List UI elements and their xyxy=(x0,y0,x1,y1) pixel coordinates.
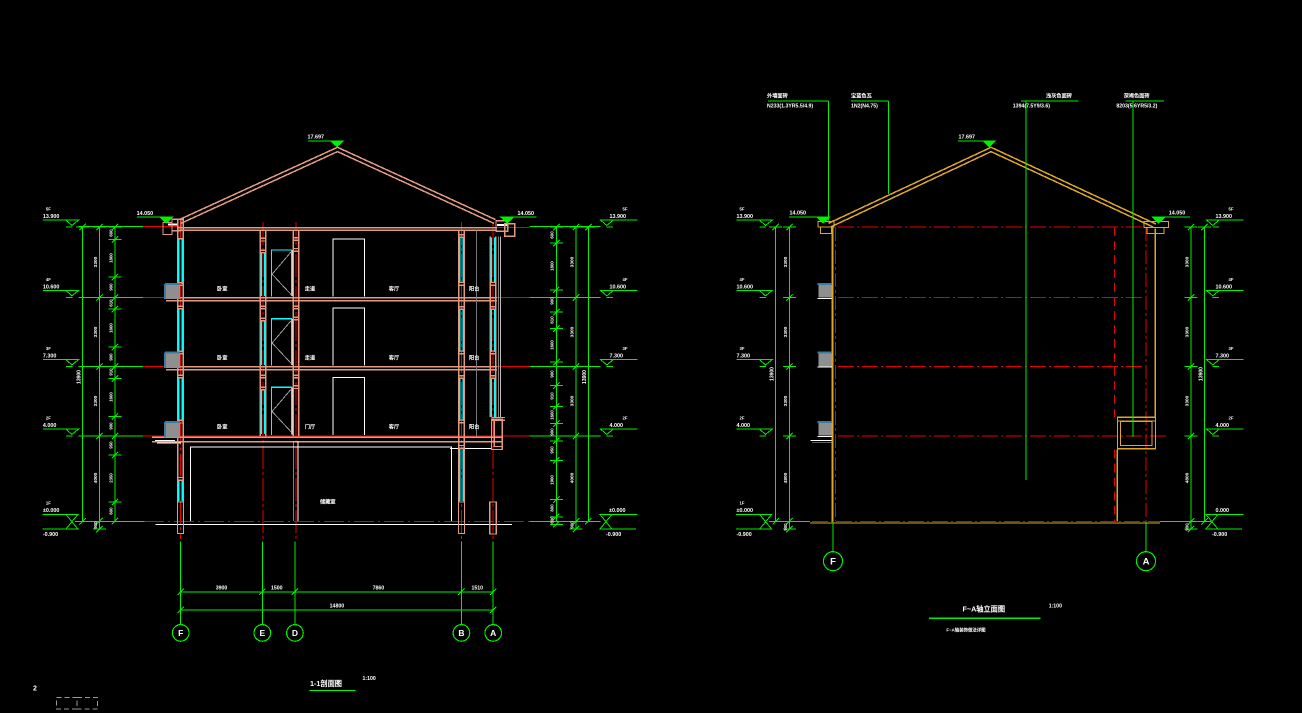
svg-text:14800: 14800 xyxy=(330,603,345,609)
svg-text:1600: 1600 xyxy=(550,410,555,420)
svg-text:7.300: 7.300 xyxy=(610,353,624,359)
svg-text:2F: 2F xyxy=(623,416,628,421)
svg-text:7.300: 7.300 xyxy=(1216,353,1230,359)
svg-text:910: 910 xyxy=(108,368,113,376)
svg-text:±0.000: ±0.000 xyxy=(43,508,59,514)
svg-text:3F: 3F xyxy=(623,346,628,351)
svg-text:客厅: 客厅 xyxy=(388,354,400,362)
svg-text:4F: 4F xyxy=(623,277,628,282)
svg-text:-0.900: -0.900 xyxy=(606,532,621,538)
svg-text:600: 600 xyxy=(108,229,113,237)
svg-text:-0.900: -0.900 xyxy=(1212,532,1227,538)
svg-text:3300: 3300 xyxy=(1184,326,1190,337)
svg-text:1F: 1F xyxy=(740,501,745,506)
svg-text:10.600: 10.600 xyxy=(610,284,627,290)
svg-text:950: 950 xyxy=(550,446,555,454)
svg-text:2F: 2F xyxy=(1229,416,1234,421)
svg-text:1394(7.5Y9/3.6): 1394(7.5Y9/3.6) xyxy=(1013,104,1050,110)
svg-text:F~A轴立面图: F~A轴立面图 xyxy=(963,605,1006,614)
svg-text:600: 600 xyxy=(550,516,555,524)
svg-text:卧室: 卧室 xyxy=(217,354,227,362)
svg-text:1800: 1800 xyxy=(550,261,555,271)
svg-text:5F: 5F xyxy=(1229,207,1234,212)
svg-text:900: 900 xyxy=(1184,523,1189,531)
svg-text:17.697: 17.697 xyxy=(308,135,325,141)
svg-text:4800: 4800 xyxy=(783,472,789,483)
svg-text:13900: 13900 xyxy=(1198,367,1204,381)
svg-text:外墙面砖: 外墙面砖 xyxy=(767,92,789,100)
svg-text:4.000: 4.000 xyxy=(737,423,751,429)
svg-text:900: 900 xyxy=(783,523,788,531)
svg-text:1600: 1600 xyxy=(550,340,555,350)
svg-text:7.300: 7.300 xyxy=(43,353,57,359)
svg-text:5F: 5F xyxy=(46,207,51,212)
svg-text:深褐色面砖: 深褐色面砖 xyxy=(1124,92,1151,100)
svg-text:13900: 13900 xyxy=(770,367,776,381)
svg-text:3300: 3300 xyxy=(93,326,99,337)
svg-text:N233(1.3YR5.5/4.9): N233(1.3YR5.5/4.9) xyxy=(767,104,813,110)
svg-text:3300: 3300 xyxy=(569,395,575,406)
svg-text:900: 900 xyxy=(569,521,574,529)
svg-text:4000: 4000 xyxy=(569,472,575,483)
svg-text:14.050: 14.050 xyxy=(1169,211,1186,217)
svg-text:3300: 3300 xyxy=(93,256,99,267)
svg-text:客厅: 客厅 xyxy=(388,423,400,431)
svg-text:2F: 2F xyxy=(740,416,745,421)
svg-text:1F: 1F xyxy=(46,501,51,506)
svg-text:阳台: 阳台 xyxy=(469,423,479,431)
svg-text:600: 600 xyxy=(108,507,113,515)
svg-text:阳台: 阳台 xyxy=(469,285,479,293)
svg-text:A: A xyxy=(490,628,496,638)
svg-text:储藏室: 储藏室 xyxy=(320,498,336,506)
svg-text:F~A轴装饰做法详图: F~A轴装饰做法详图 xyxy=(946,626,986,633)
svg-text:F: F xyxy=(178,628,183,638)
svg-text:2350: 2350 xyxy=(108,473,113,483)
svg-text:13.900: 13.900 xyxy=(1216,214,1233,220)
svg-text:门厅: 门厅 xyxy=(305,423,316,431)
svg-text:610: 610 xyxy=(550,316,555,324)
svg-text:13.900: 13.900 xyxy=(610,214,627,220)
svg-text:B: B xyxy=(458,628,464,638)
svg-text:3900: 3900 xyxy=(216,585,228,591)
svg-text:14.050: 14.050 xyxy=(137,211,154,217)
svg-text:13.900: 13.900 xyxy=(43,214,60,220)
svg-text:2F: 2F xyxy=(46,416,51,421)
svg-text:4F: 4F xyxy=(1229,277,1234,282)
svg-text:±0.000: ±0.000 xyxy=(609,508,625,514)
svg-text:-0.900: -0.900 xyxy=(737,532,752,538)
svg-text:走道: 走道 xyxy=(305,285,316,293)
svg-text:600: 600 xyxy=(550,231,555,239)
svg-text:1800: 1800 xyxy=(108,253,113,263)
svg-text:客厅: 客厅 xyxy=(388,285,400,293)
svg-text:5F: 5F xyxy=(740,207,745,212)
svg-text:1900: 1900 xyxy=(550,475,555,485)
svg-text:1-1剖面图: 1-1剖面图 xyxy=(310,679,342,688)
svg-text:910: 910 xyxy=(550,392,555,400)
svg-text:宝蓝色瓦: 宝蓝色瓦 xyxy=(851,92,873,100)
svg-text:900: 900 xyxy=(108,353,113,361)
svg-text:7.300: 7.300 xyxy=(737,353,751,359)
svg-text:2: 2 xyxy=(33,686,37,693)
svg-text:D: D xyxy=(292,628,298,638)
svg-text:1600: 1600 xyxy=(108,323,113,333)
svg-text:-0.900: -0.900 xyxy=(43,532,58,538)
svg-text:4000: 4000 xyxy=(93,472,99,483)
svg-text:14.050: 14.050 xyxy=(790,211,807,217)
svg-text:3300: 3300 xyxy=(783,256,789,267)
svg-text:950: 950 xyxy=(108,441,113,449)
svg-text:900: 900 xyxy=(93,521,98,529)
svg-text:1:100: 1:100 xyxy=(1049,604,1062,610)
svg-text:800: 800 xyxy=(550,504,555,512)
svg-text:3F: 3F xyxy=(740,346,745,351)
svg-text:F: F xyxy=(830,557,836,568)
svg-text:4F: 4F xyxy=(46,277,51,282)
svg-text:14.050: 14.050 xyxy=(518,211,535,217)
svg-text:3300: 3300 xyxy=(569,256,575,267)
svg-text:17.697: 17.697 xyxy=(959,135,976,141)
svg-text:900: 900 xyxy=(108,283,113,291)
svg-text:4.000: 4.000 xyxy=(610,423,624,429)
svg-text:3300: 3300 xyxy=(783,395,789,406)
svg-text:900: 900 xyxy=(550,297,555,305)
svg-text:4.000: 4.000 xyxy=(43,423,57,429)
svg-text:7860: 7860 xyxy=(373,585,385,591)
svg-text:A: A xyxy=(1143,557,1150,568)
svg-text:5F: 5F xyxy=(623,207,628,212)
svg-text:13900: 13900 xyxy=(77,370,83,384)
svg-text:3300: 3300 xyxy=(93,395,99,406)
svg-text:3300: 3300 xyxy=(1184,256,1190,267)
svg-text:1N2(N4.75): 1N2(N4.75) xyxy=(851,104,878,110)
svg-text:900: 900 xyxy=(550,370,555,378)
svg-text:走道: 走道 xyxy=(305,354,316,362)
svg-text:4800: 4800 xyxy=(1184,472,1190,483)
svg-text:10.600: 10.600 xyxy=(1216,284,1233,290)
svg-text:3F: 3F xyxy=(1229,346,1234,351)
svg-text:10.600: 10.600 xyxy=(43,284,60,290)
svg-text:3F: 3F xyxy=(46,346,51,351)
svg-text:3300: 3300 xyxy=(783,326,789,337)
svg-text:3300: 3300 xyxy=(569,326,575,337)
svg-text:900: 900 xyxy=(108,422,113,430)
svg-text:13.900: 13.900 xyxy=(737,214,754,220)
svg-text:0.000: 0.000 xyxy=(1216,508,1230,514)
svg-text:卧室: 卧室 xyxy=(217,285,227,293)
svg-text:1510: 1510 xyxy=(472,585,484,591)
svg-text:13900: 13900 xyxy=(582,370,588,384)
svg-text:±0.000: ±0.000 xyxy=(737,508,753,514)
svg-text:1600: 1600 xyxy=(108,392,113,402)
svg-text:10.600: 10.600 xyxy=(737,284,754,290)
svg-text:4.000: 4.000 xyxy=(1216,423,1230,429)
svg-text:4F: 4F xyxy=(740,277,745,282)
svg-text:卧室: 卧室 xyxy=(217,423,227,431)
svg-text:浅灰色面砖: 浅灰色面砖 xyxy=(1046,92,1073,100)
svg-text:8203(5.6YR5/3.2): 8203(5.6YR5/3.2) xyxy=(1116,104,1157,110)
svg-text:900: 900 xyxy=(550,428,555,436)
svg-text:1500: 1500 xyxy=(271,585,283,591)
svg-text:1:100: 1:100 xyxy=(363,676,376,682)
svg-text:3300: 3300 xyxy=(1184,395,1190,406)
svg-text:610: 610 xyxy=(108,299,113,307)
svg-text:E: E xyxy=(259,628,265,638)
svg-text:阳台: 阳台 xyxy=(469,354,479,362)
